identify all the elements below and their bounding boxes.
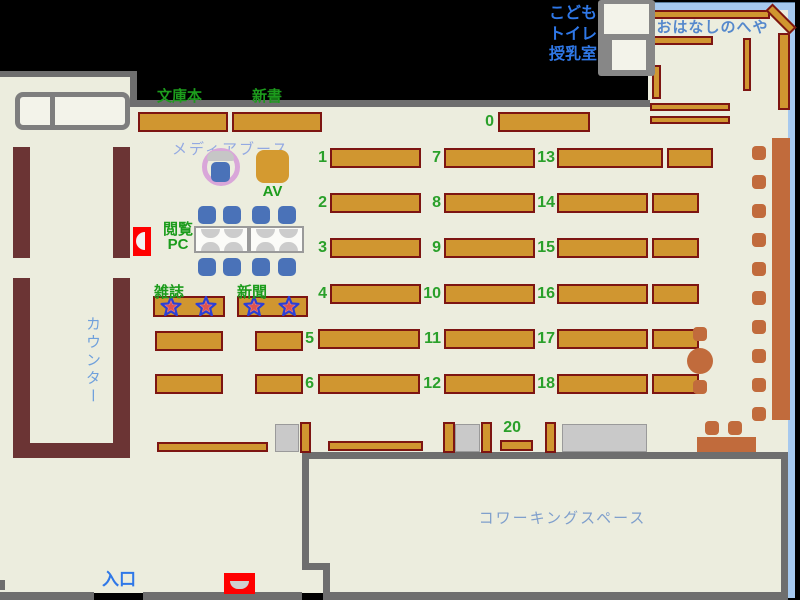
counter-block [13,443,130,458]
stool [752,407,766,421]
pc-chair [223,258,241,276]
pc-chair [252,206,270,224]
bookshelf [443,422,455,453]
star-icon [277,295,301,319]
bookshelf [155,374,223,394]
bookshelf [232,112,322,132]
shelf-number-10: 10 [411,284,441,304]
stool [752,175,766,189]
pc-seat-mark [256,229,275,238]
nursing-label: 授乳室 [527,45,597,66]
shelf-number-7: 7 [411,148,441,168]
toilet-structure [598,0,655,76]
shelf-number-20: 20 [491,418,521,438]
wall-segment [302,452,788,459]
wall-segment [0,580,5,590]
wall-segment [0,71,137,77]
red-station-west [133,227,151,256]
red-station-entrance [224,573,255,594]
wall-segment [130,71,137,107]
bookshelf [444,238,535,258]
entrance-label: 入口 [102,565,136,590]
counter-block [113,278,130,445]
counter-label: カウンター [82,316,103,431]
bookshelf [300,422,311,453]
shelf-number-12: 12 [411,374,441,394]
bookshelf [557,238,648,258]
toilet-label: トイレ [527,25,597,46]
bookshelf [652,193,699,213]
wall-segment [323,563,330,593]
bookshelf [667,148,713,168]
wall-segment [137,100,650,107]
bookshelf [650,36,713,45]
bookshelf [157,442,268,452]
bench [772,138,790,420]
bookshelf [330,284,421,304]
equipment-box [275,424,299,452]
bench [697,437,756,452]
bookshelf [557,284,648,304]
shelf-number-6: 6 [284,374,314,394]
pc-chair [252,258,270,276]
shelf-number-8: 8 [411,193,441,213]
kids-label: こども [527,4,597,25]
coworking-label: コワーキングスペース [455,507,670,528]
bookshelf [444,284,535,304]
counter-block [113,147,130,258]
red-station-west-mark [136,232,145,250]
bookshelf [743,38,751,91]
shelf-number-5: 5 [284,329,314,349]
pc-chair [278,258,296,276]
pc-label-line1: 閲覧 [158,222,198,237]
bookshelf [650,103,730,111]
paperback-label: 文庫本 [157,85,202,106]
counter-block [13,147,30,258]
bookshelf [652,374,699,394]
equipment-box [455,424,480,452]
bookshelf [652,284,699,304]
av-label: AV [256,183,289,200]
magazine-label: 雑誌 [154,281,184,302]
bookshelf [155,331,223,351]
bookshelf [778,33,790,110]
bookshelf [444,193,535,213]
bookshelf [330,238,421,258]
pc-seat-mark [279,229,298,238]
pc-seat-mark [201,229,220,238]
stool [752,320,766,334]
bookshelf [444,329,535,349]
stool [693,327,707,341]
shelf-number-15: 15 [525,238,555,258]
shelf-number-11: 11 [411,329,441,349]
pc-seat-mark [256,242,275,251]
pc-table [194,226,249,253]
new-books-label: 新書 [252,85,282,106]
toilet-room [604,4,649,34]
shelf-number-18: 18 [525,374,555,394]
stool [752,204,766,218]
stool [728,421,742,435]
bookshelf [318,329,420,349]
bookshelf [330,148,421,168]
storyroom-label: おはなしのへや [650,16,775,37]
bookshelf [557,374,648,394]
library-floor-map: 012345678910111213141516171820 こども トイレ 授… [0,0,800,600]
av-booth [256,150,289,183]
pc-table [249,226,304,253]
pc-chair [198,258,216,276]
newspaper-label: 新聞 [237,281,267,302]
pc-chair [278,206,296,224]
stool [752,262,766,276]
pc-chair [223,206,241,224]
media-booth-monitor [207,151,234,161]
bookshelf [500,440,533,451]
shelf-number-1: 1 [297,148,327,168]
counter-block [13,278,30,458]
shelf-number-16: 16 [525,284,555,304]
equipment-box [562,424,647,452]
bookshelf [328,441,423,451]
shelf-number-13: 13 [525,148,555,168]
stool [705,421,719,435]
pc-seat-mark [201,242,220,251]
bookshelf [557,193,648,213]
bookshelf [652,238,699,258]
pc-area-label: 閲覧 PC [158,222,198,252]
pc-seat-mark [224,242,243,251]
geometry-layer: 012345678910111213141516171820 [0,0,800,600]
stool [752,146,766,160]
stool [752,349,766,363]
kids-toilet-labels: こども トイレ 授乳室 [527,4,597,66]
shelf-number-0: 0 [464,112,494,132]
stool [752,291,766,305]
stool [752,233,766,247]
bookshelf [138,112,228,132]
bookshelf [652,329,699,349]
stool [752,378,766,392]
wall-segment [781,452,788,600]
bookshelf [545,422,556,453]
wall-segment [143,592,302,600]
bookshelf [444,374,535,394]
red-station-entrance-mark [230,581,249,589]
bookshelf [498,112,590,132]
shelf-number-2: 2 [297,193,327,213]
nursing-room [612,40,646,70]
service-desk-divider [50,97,55,125]
wall-segment [302,452,309,565]
shelf-number-14: 14 [525,193,555,213]
star-icon [194,295,218,319]
wall-segment [323,592,788,600]
shelf-number-9: 9 [411,238,441,258]
shelf-number-17: 17 [525,329,555,349]
bookshelf [650,116,730,124]
shelf-number-4: 4 [297,284,327,304]
pc-seat-mark [279,242,298,251]
bookshelf [557,148,663,168]
bookshelf [330,193,421,213]
pc-label-line2: PC [158,237,198,252]
media-booth-chair [211,162,230,182]
pc-chair [198,206,216,224]
stool [693,380,707,394]
pc-seat-mark [224,229,243,238]
service-desk [15,92,130,130]
bookshelf [557,329,648,349]
wall-segment [0,592,94,600]
bookshelf [318,374,420,394]
bookshelf [444,148,535,168]
round-table [687,348,713,374]
